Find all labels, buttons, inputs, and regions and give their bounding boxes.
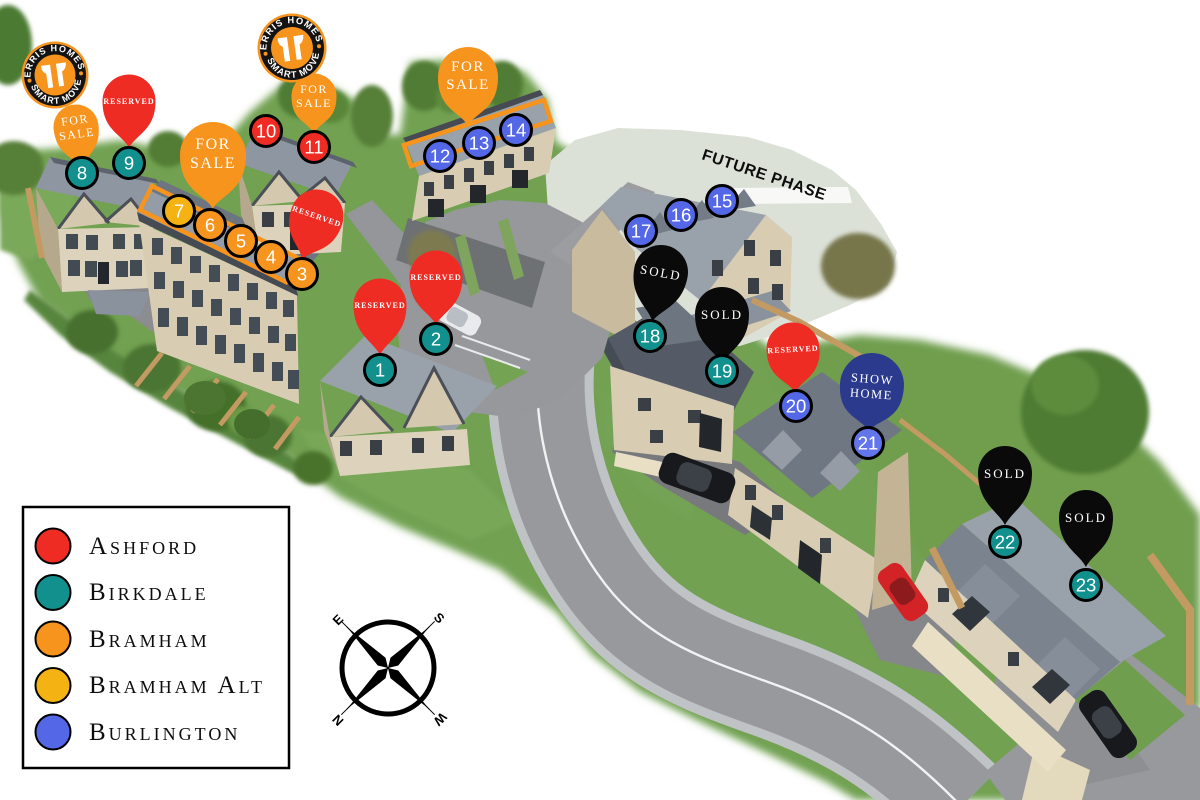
svg-text:14: 14 — [506, 120, 527, 141]
svg-text:22: 22 — [995, 532, 1016, 553]
svg-text:18: 18 — [640, 326, 661, 347]
svg-text:SOLD: SOLD — [1065, 510, 1107, 525]
svg-text:SALE: SALE — [446, 77, 490, 93]
svg-text:7: 7 — [174, 201, 184, 222]
svg-text:1: 1 — [375, 360, 385, 381]
svg-text:FOR: FOR — [195, 136, 231, 153]
svg-text:S: S — [431, 609, 448, 626]
svg-text:SHOW: SHOW — [851, 371, 895, 388]
svg-text:8: 8 — [77, 163, 87, 184]
svg-text:E: E — [329, 611, 346, 628]
svg-text:FOR: FOR — [451, 59, 485, 75]
svg-text:11: 11 — [304, 137, 323, 158]
svg-text:17: 17 — [631, 221, 652, 242]
svg-text:Burlington: Burlington — [89, 719, 240, 746]
svg-text:HOME: HOME — [850, 386, 894, 403]
svg-text:SALE: SALE — [190, 155, 236, 172]
svg-text:N: N — [329, 712, 346, 729]
svg-text:23: 23 — [1076, 575, 1097, 596]
svg-text:16: 16 — [671, 205, 692, 226]
svg-text:3: 3 — [297, 264, 307, 285]
svg-text:RESERVED: RESERVED — [410, 273, 461, 282]
svg-text:4: 4 — [266, 247, 276, 268]
svg-text:20: 20 — [786, 396, 807, 417]
svg-text:9: 9 — [124, 153, 134, 174]
svg-text:10: 10 — [256, 121, 277, 142]
svg-text:5: 5 — [236, 231, 246, 252]
svg-text:21: 21 — [858, 433, 879, 454]
svg-text:6: 6 — [205, 215, 215, 236]
svg-text:13: 13 — [469, 133, 490, 154]
svg-text:RESERVED: RESERVED — [354, 301, 405, 310]
svg-text:RESERVED: RESERVED — [103, 97, 154, 106]
svg-text:FOR: FOR — [300, 82, 328, 96]
svg-text:2: 2 — [431, 329, 441, 350]
svg-text:Bramham Alt: Bramham Alt — [89, 672, 265, 699]
svg-text:SALE: SALE — [296, 96, 332, 110]
svg-text:15: 15 — [712, 191, 733, 212]
svg-text:SOLD: SOLD — [984, 466, 1026, 481]
svg-text:SOLD: SOLD — [701, 307, 743, 322]
svg-text:19: 19 — [712, 361, 733, 382]
svg-text:Bramham: Bramham — [89, 626, 210, 653]
svg-text:Birkdale: Birkdale — [89, 579, 209, 606]
svg-text:Ashford: Ashford — [89, 533, 199, 560]
svg-text:12: 12 — [430, 146, 451, 167]
